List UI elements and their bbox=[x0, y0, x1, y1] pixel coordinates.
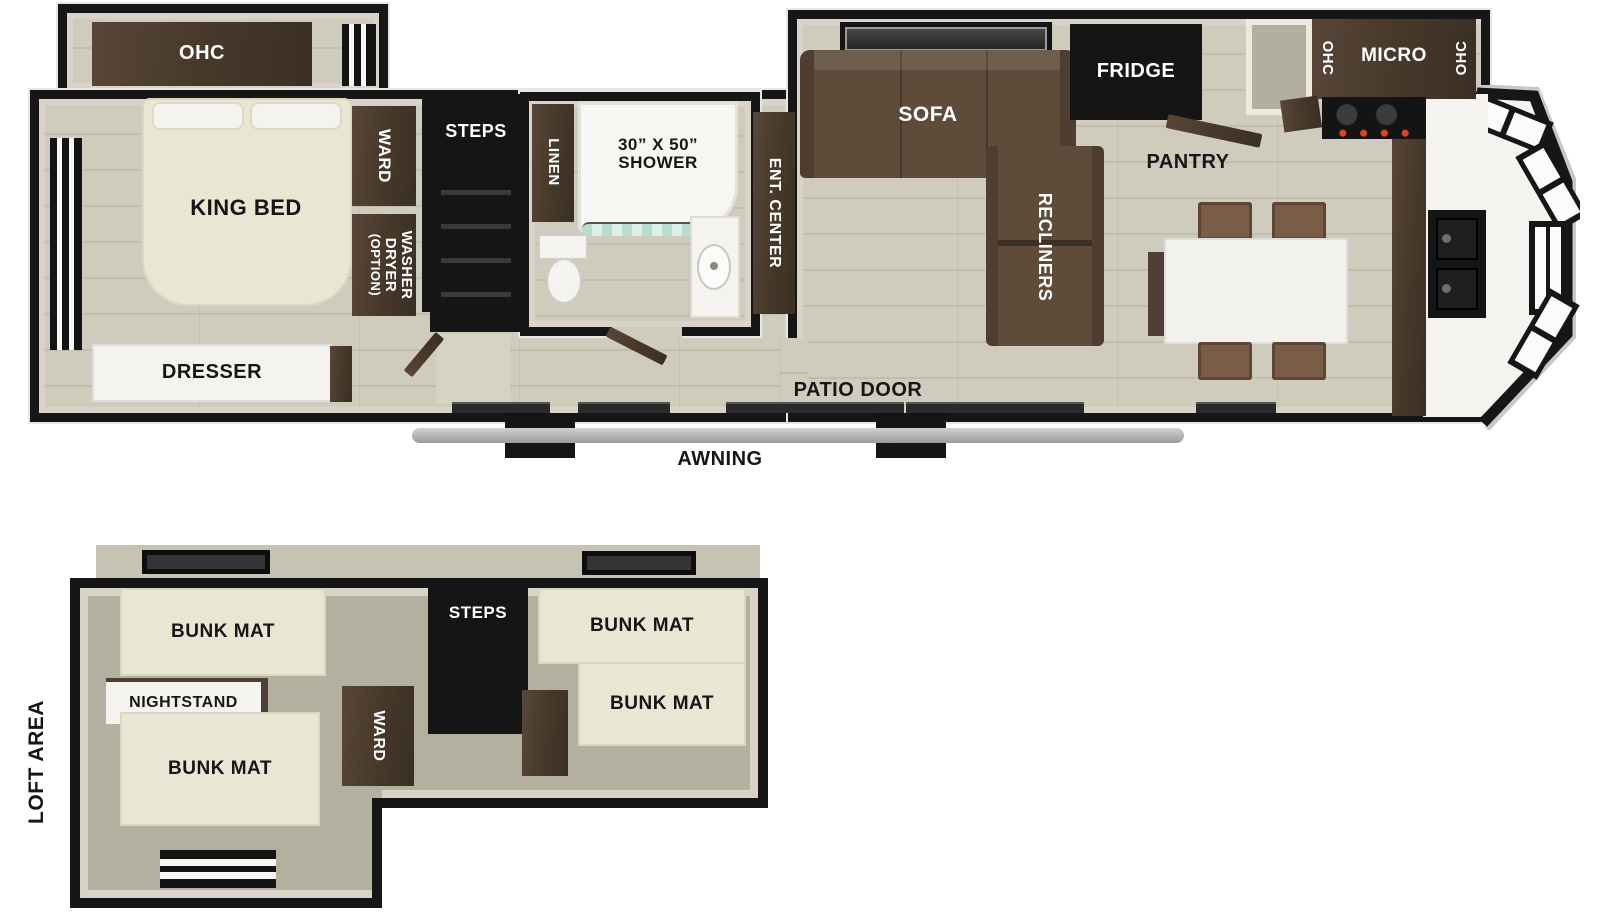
washer-line: WASHER bbox=[398, 209, 414, 321]
patio-door-panel bbox=[452, 402, 550, 413]
loft-wall-top bbox=[70, 578, 768, 588]
shower-label: 30” X 50” SHOWER bbox=[578, 136, 738, 173]
pantry-label: PANTRY bbox=[1108, 152, 1268, 174]
bed-pillow bbox=[250, 102, 342, 130]
ent-center-label: ENT. CENTER bbox=[760, 126, 788, 300]
loft-cabinet bbox=[522, 690, 568, 776]
recliners-label: RECLINERS bbox=[1031, 160, 1059, 334]
bedroom-ward-label: WARD bbox=[370, 106, 398, 206]
bedroom-divider-wall bbox=[422, 90, 431, 312]
patio-door-label: PATIO DOOR bbox=[758, 380, 958, 402]
dresser-label: DRESSER bbox=[162, 362, 262, 384]
dining-table bbox=[1164, 238, 1348, 344]
kitchen-ohc-left-label: OHC bbox=[1314, 26, 1340, 90]
loft-wall-bottom-right bbox=[372, 798, 768, 808]
loft-lining-right bbox=[750, 588, 758, 798]
dining-chair bbox=[1272, 342, 1326, 380]
loft-steps-label: STEPS bbox=[428, 604, 528, 622]
loft-wall-bottom-left bbox=[70, 898, 382, 908]
loft-skylight bbox=[582, 551, 696, 575]
bunk-mat-label: BUNK MAT bbox=[610, 694, 714, 715]
kitchen-sink bbox=[1428, 210, 1486, 318]
nightstand-label: NIGHTSTAND bbox=[129, 694, 238, 711]
bedroom-ohc-label: OHC bbox=[179, 43, 225, 65]
loft-skylight bbox=[142, 550, 270, 574]
bedroom-slideout-window bbox=[342, 24, 376, 86]
patio-door-panel bbox=[578, 402, 670, 413]
king-bed-label: KING BED bbox=[146, 196, 346, 220]
dining-bench bbox=[1148, 252, 1164, 336]
step-tread bbox=[441, 258, 511, 263]
option-line: (OPTION) bbox=[368, 209, 382, 321]
bunk-mat-3: BUNK MAT bbox=[538, 588, 746, 664]
dining-chair bbox=[1198, 202, 1252, 240]
rv-floorplan: OHC bbox=[0, 0, 1600, 922]
dryer-line: DRYER bbox=[382, 209, 398, 321]
kitchen-ohc-right-label: OHC bbox=[1449, 26, 1475, 90]
shower-word: SHOWER bbox=[578, 154, 738, 172]
bedroom-ohc-cabinet: OHC bbox=[92, 22, 312, 86]
dresser-end-cabinet bbox=[330, 346, 352, 402]
loft-wall-step bbox=[372, 798, 382, 908]
loft-lining-left bbox=[80, 588, 88, 898]
awning-bar bbox=[412, 428, 1184, 443]
dining-chair bbox=[1198, 342, 1252, 380]
toilet-tank bbox=[538, 234, 588, 260]
step-tread bbox=[441, 190, 511, 195]
fridge: FRIDGE bbox=[1070, 24, 1202, 120]
fridge-label: FRIDGE bbox=[1097, 61, 1176, 83]
bedroom-window bbox=[50, 138, 82, 350]
kitchen-counter-top bbox=[1424, 94, 1488, 140]
bunk-mat-label: BUNK MAT bbox=[171, 622, 275, 643]
stove bbox=[1322, 97, 1426, 139]
patio-door-panel bbox=[906, 402, 1084, 413]
linen-label: LINEN bbox=[540, 112, 566, 212]
step-tread bbox=[441, 292, 511, 297]
loft-wall-left bbox=[70, 578, 80, 908]
bunk-mat-2: BUNK MAT bbox=[120, 712, 320, 826]
steps-main-label: STEPS bbox=[430, 122, 522, 141]
bed-pillow bbox=[152, 102, 244, 130]
dresser: DRESSER bbox=[92, 344, 332, 402]
kitchen-counter bbox=[1392, 126, 1426, 416]
faucet-icon bbox=[1442, 284, 1451, 293]
washer-dryer-label: WASHER DRYER (OPTION) bbox=[354, 209, 414, 321]
bunk-mat-1: BUNK MAT bbox=[120, 588, 326, 676]
loft-lining-bottom-left bbox=[88, 890, 372, 898]
step-tread bbox=[441, 224, 511, 229]
dining-chair bbox=[1272, 202, 1326, 240]
awning-label: AWNING bbox=[620, 449, 820, 471]
kitchen-shelf bbox=[1280, 96, 1322, 133]
kitchen-micro-label: MICRO bbox=[1338, 46, 1450, 67]
sofa-label: SOFA bbox=[838, 104, 1018, 127]
toilet-bowl bbox=[546, 258, 582, 304]
loft-area-label: LOFT AREA bbox=[23, 665, 51, 859]
bath-faucet-icon bbox=[710, 262, 718, 270]
loft-wall-right bbox=[758, 578, 768, 808]
loft-ward-label: WARD bbox=[364, 686, 392, 786]
loft-window bbox=[160, 850, 276, 888]
bunk-mat-4: BUNK MAT bbox=[578, 662, 746, 746]
bunk-mat-label: BUNK MAT bbox=[168, 759, 272, 780]
loft-lining-bottom-right bbox=[382, 790, 750, 798]
bunk-mat-label: BUNK MAT bbox=[590, 616, 694, 637]
shower-size: 30” X 50” bbox=[578, 136, 738, 154]
faucet-icon bbox=[1442, 234, 1451, 243]
patio-door-panel bbox=[1196, 402, 1276, 413]
steps-landing bbox=[436, 334, 510, 404]
patio-door-panel bbox=[726, 402, 904, 413]
